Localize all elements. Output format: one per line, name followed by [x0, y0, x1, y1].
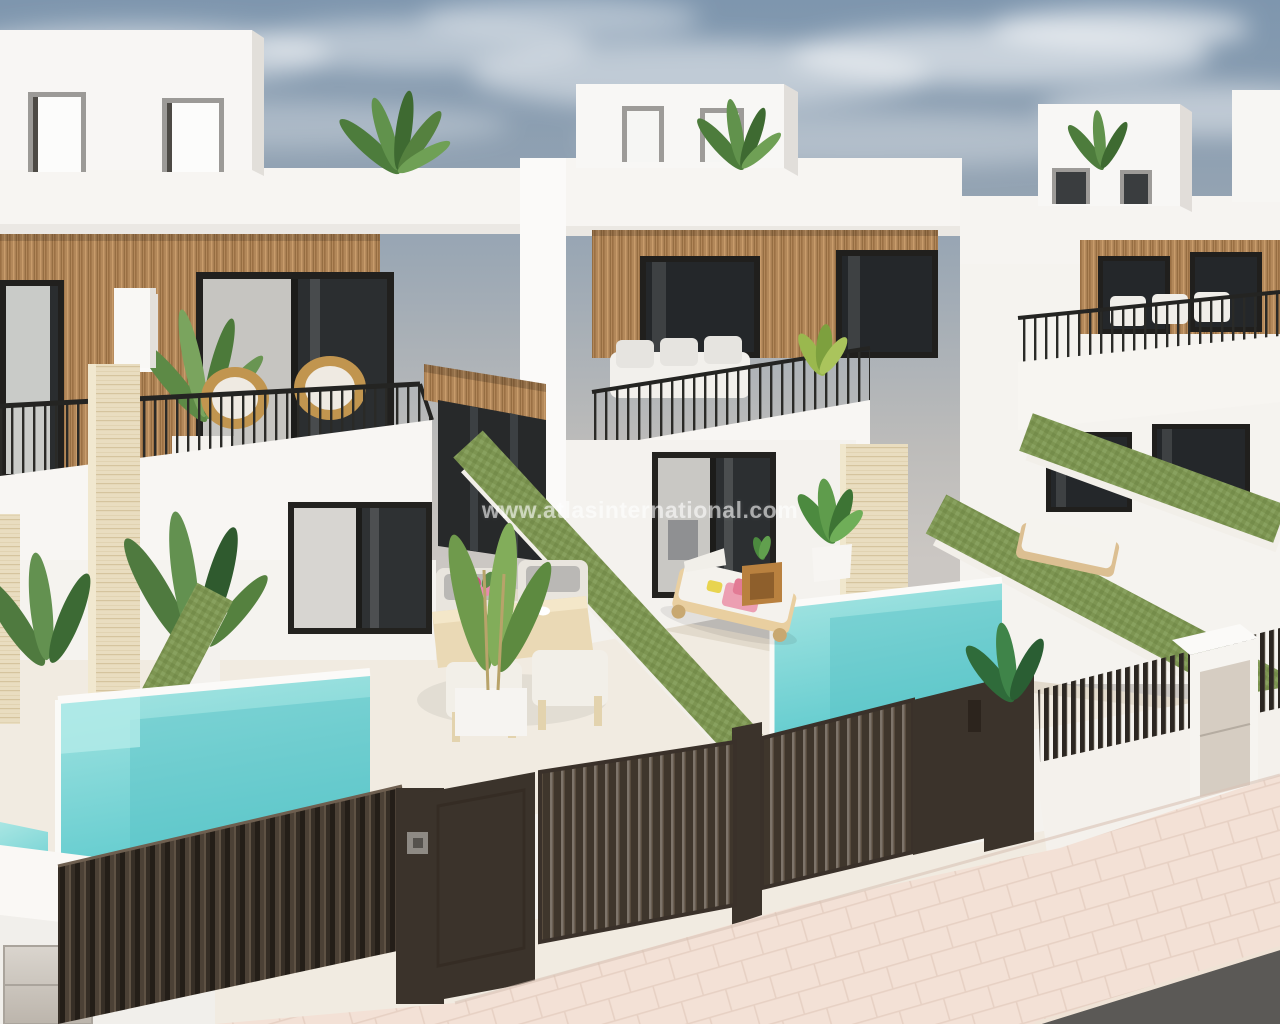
roof-door: [28, 92, 86, 172]
center-roof-box: [576, 84, 798, 176]
render-canvas: www.atlasinternational.com: [0, 0, 1280, 1024]
gate-latch[interactable]: [968, 700, 981, 732]
far-right-roof-box: [1232, 90, 1280, 202]
meter-cabinet-doors: [1200, 660, 1250, 797]
right-roof-box: [1038, 104, 1192, 212]
left-ground-glass-door: [288, 502, 432, 634]
gate-left-solid-panel[interactable]: [428, 772, 535, 1002]
center-window-upper: [836, 250, 938, 358]
left-roof-box: [0, 30, 264, 176]
roof-door: [162, 98, 224, 172]
